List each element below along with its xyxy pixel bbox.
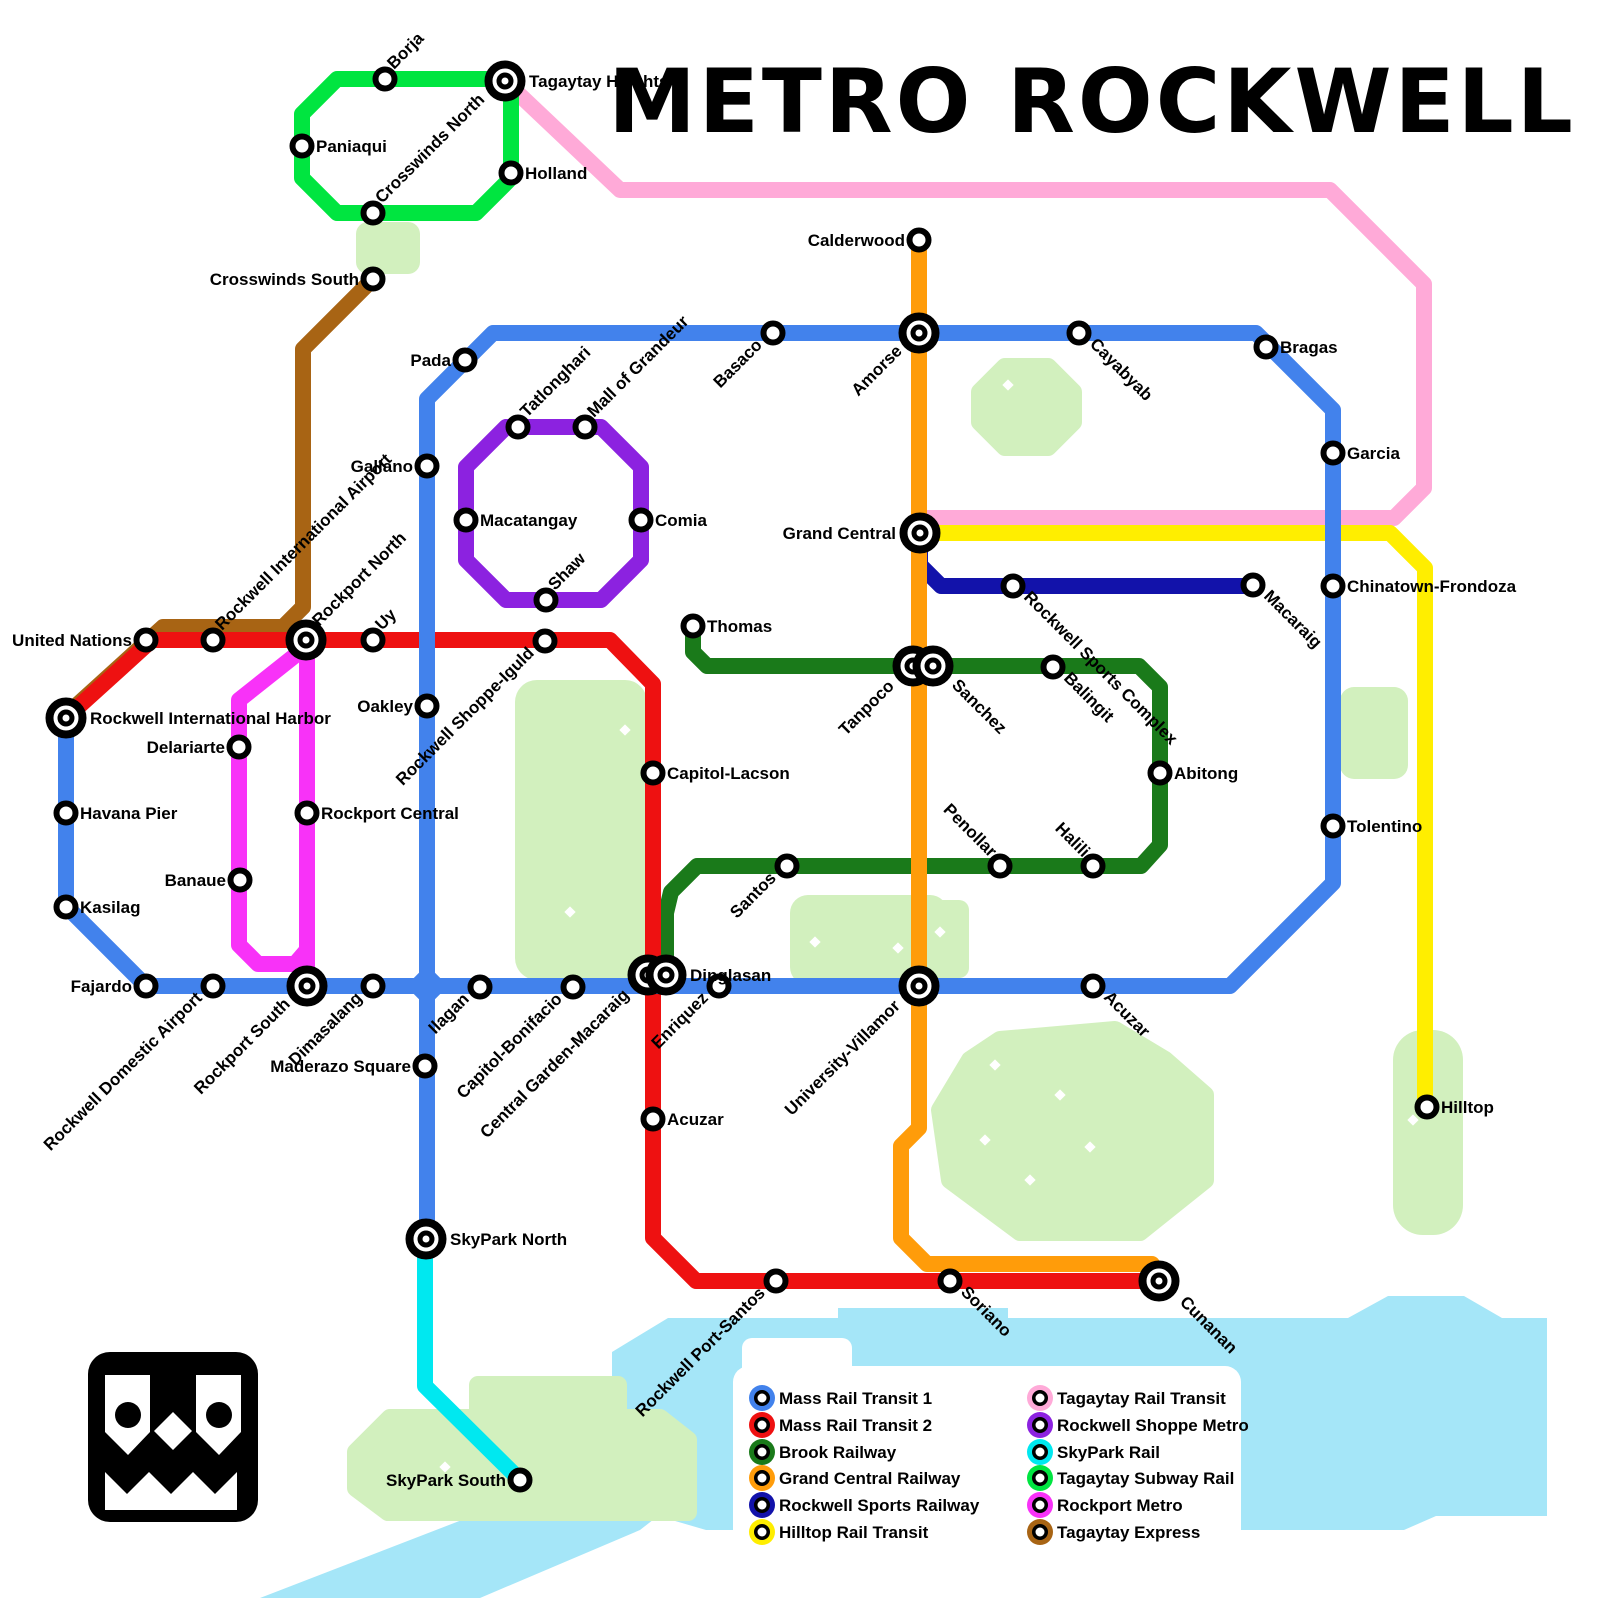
station-label-bragas: Bragas bbox=[1280, 338, 1338, 357]
station-label-santos: Santos bbox=[726, 868, 780, 922]
station-university-villamor bbox=[903, 970, 936, 1003]
station-label-rockport-south: Rockport South bbox=[190, 994, 294, 1098]
station-penollar bbox=[991, 857, 1010, 876]
station-label-banaue: Banaue bbox=[165, 871, 226, 890]
station-rockwell-sports-complex bbox=[1004, 577, 1023, 596]
station-label-borja: Borja bbox=[383, 28, 428, 73]
station-label-crosswinds-north: Crosswinds North bbox=[371, 90, 488, 207]
station-grand-central bbox=[904, 517, 937, 550]
junction-diamond bbox=[406, 965, 448, 1007]
legend: Mass Rail Transit 1Mass Rail Transit 2Br… bbox=[733, 1338, 1249, 1548]
station-amorse bbox=[903, 317, 936, 350]
station-chinatown-frondoza bbox=[1324, 577, 1343, 596]
station-rockwell-shoppe-iguld bbox=[536, 632, 555, 651]
station-label-grand-central: Grand Central bbox=[783, 524, 896, 543]
station-label-garcia: Garcia bbox=[1347, 444, 1400, 463]
station-label-tanpoco: Tanpoco bbox=[835, 676, 898, 739]
station-label-shaw: Shaw bbox=[544, 548, 589, 593]
station-tatlonghari bbox=[509, 418, 528, 437]
metro-rockwell-logo bbox=[88, 1352, 258, 1522]
station-label-thomas: Thomas bbox=[707, 617, 772, 636]
legend-item-grand-central-railway: Grand Central Railway bbox=[749, 1465, 961, 1491]
station-label-abitong: Abitong bbox=[1174, 764, 1238, 783]
legend-label-grand-central-railway: Grand Central Railway bbox=[779, 1469, 961, 1488]
metro-map: BorjaTagaytay HeightsPaniaquiHollandCros… bbox=[0, 0, 1600, 1600]
station-ilagan bbox=[471, 978, 490, 997]
metro-map-canvas: BorjaTagaytay HeightsPaniaquiHollandCros… bbox=[0, 0, 1600, 1600]
station-label-basaco: Basaco bbox=[710, 335, 766, 391]
station-label-kasilag: Kasilag bbox=[80, 898, 140, 917]
station-label-pada: Pada bbox=[410, 351, 451, 370]
station-crosswinds-north bbox=[364, 204, 383, 223]
station-capitol-lacson bbox=[644, 764, 663, 783]
station-abitong bbox=[1151, 764, 1170, 783]
station-label-sanchez: Sanchez bbox=[948, 675, 1010, 737]
park-0 bbox=[356, 222, 420, 274]
station-label-macatangay: Macatangay bbox=[480, 511, 578, 530]
station-label-delariarte: Delariarte bbox=[147, 738, 225, 757]
station-label-rockwell-domestic-airport: Rockwell Domestic Airport bbox=[40, 988, 206, 1154]
station-label-halili: Halili bbox=[1051, 819, 1093, 861]
station-macatangay bbox=[457, 511, 476, 530]
station-delariarte bbox=[230, 738, 249, 757]
station-calderwood bbox=[910, 231, 929, 250]
station-rockport-central bbox=[298, 804, 317, 823]
station-label-skypark-north: SkyPark North bbox=[450, 1230, 567, 1249]
line-rockwell-sports-railway bbox=[920, 540, 1253, 586]
legend-label-rockwell-shoppe-metro: Rockwell Shoppe Metro bbox=[1057, 1416, 1249, 1435]
legend-label-tagaytay-rail-transit: Tagaytay Rail Transit bbox=[1057, 1389, 1226, 1408]
station-crosswinds-south bbox=[364, 270, 383, 289]
station-kasilag bbox=[57, 898, 76, 917]
station-sanchez bbox=[917, 650, 950, 683]
station-banaue bbox=[231, 871, 250, 890]
station-label-maderazo-square: Maderazo Square bbox=[270, 1057, 411, 1076]
legend-label-tagaytay-subway-rail: Tagaytay Subway Rail bbox=[1057, 1469, 1234, 1488]
station-comia bbox=[632, 511, 651, 530]
station-label-rockport-central: Rockport Central bbox=[321, 804, 459, 823]
legend-label-mass-rail-transit-1: Mass Rail Transit 1 bbox=[779, 1389, 932, 1408]
station-label-skypark-south: SkyPark South bbox=[386, 1471, 506, 1490]
station-holland bbox=[502, 164, 521, 183]
station-label-capitol-lacson: Capitol-Lacson bbox=[667, 764, 790, 783]
legend-label-tagaytay-express: Tagaytay Express bbox=[1057, 1523, 1200, 1542]
station-rockport-south bbox=[291, 970, 324, 1003]
legend-label-skypark-rail: SkyPark Rail bbox=[1057, 1443, 1160, 1462]
station-dinglasan bbox=[650, 959, 683, 992]
station-label-dinglasan: Dinglasan bbox=[690, 966, 771, 985]
station-label-capitol-bonifacio: Capitol-Bonifacio bbox=[453, 989, 566, 1102]
station-fajardo bbox=[137, 977, 156, 996]
station-rockwell-domestic-airport bbox=[204, 977, 223, 996]
station-capitol-bonifacio bbox=[564, 978, 583, 997]
station-basaco bbox=[764, 324, 783, 343]
legend-label-hilltop-rail-transit: Hilltop Rail Transit bbox=[779, 1523, 929, 1542]
station-oakley bbox=[418, 697, 437, 716]
station-label-acuzar: Acuzar bbox=[667, 1110, 724, 1129]
station-macaraig bbox=[1244, 576, 1263, 595]
station-label-paniaqui: Paniaqui bbox=[316, 137, 387, 156]
legend-label-brook-railway: Brook Railway bbox=[779, 1443, 897, 1462]
station-mall-of-grandeur bbox=[576, 418, 595, 437]
legend-item-tagaytay-subway-rail: Tagaytay Subway Rail bbox=[1027, 1465, 1234, 1491]
station-santos bbox=[778, 857, 797, 876]
station-tolentino bbox=[1324, 817, 1343, 836]
station-pada bbox=[456, 351, 475, 370]
station-soriano bbox=[941, 1272, 960, 1291]
legend-item-brook-railway: Brook Railway bbox=[749, 1439, 897, 1465]
station-rockwell-port-santos bbox=[767, 1272, 786, 1291]
station-rockwell-international-harbor bbox=[50, 702, 83, 735]
legend-label-rockwell-sports-railway: Rockwell Sports Railway bbox=[779, 1496, 980, 1515]
station-label-havana-pier: Havana Pier bbox=[80, 804, 178, 823]
legend-label-mass-rail-transit-2: Mass Rail Transit 2 bbox=[779, 1416, 932, 1435]
station-label-cayabyab: Cayabyab bbox=[1086, 334, 1156, 404]
station-dimasalang bbox=[364, 977, 383, 996]
station-cayabyab bbox=[1070, 324, 1089, 343]
station-rockwell-international-airport bbox=[204, 631, 223, 650]
junction-layer bbox=[406, 965, 448, 1007]
station-label-macaraig: Macaraig bbox=[1260, 586, 1326, 652]
station-bragas bbox=[1257, 338, 1276, 357]
station-garcia bbox=[1324, 444, 1343, 463]
legend-item-rockwell-sports-railway: Rockwell Sports Railway bbox=[749, 1492, 980, 1518]
station-skypark-north bbox=[410, 1223, 443, 1256]
station-label-hilltop: Hilltop bbox=[1441, 1098, 1494, 1117]
station-label-galiano: Galiano bbox=[351, 457, 413, 476]
station-skypark-south bbox=[511, 1471, 530, 1490]
station-label-tolentino: Tolentino bbox=[1347, 817, 1422, 836]
legend-label-rockport-metro: Rockport Metro bbox=[1057, 1496, 1183, 1515]
legend-item-rockwell-shoppe-metro: Rockwell Shoppe Metro bbox=[1027, 1412, 1249, 1438]
station-rockport-north bbox=[290, 624, 323, 657]
station-label-fajardo: Fajardo bbox=[71, 977, 132, 996]
park-2 bbox=[515, 680, 647, 980]
park-1 bbox=[980, 367, 1073, 447]
station-label-crosswinds-south: Crosswinds South bbox=[210, 270, 359, 289]
station-paniaqui bbox=[293, 137, 312, 156]
station-label-calderwood: Calderwood bbox=[808, 231, 905, 250]
station-balingit bbox=[1044, 658, 1063, 677]
station-uy bbox=[364, 631, 383, 650]
station-label-chinatown-frondoza: Chinatown-Frondoza bbox=[1347, 577, 1517, 596]
station-label-penollar: Penollar bbox=[940, 800, 1001, 861]
map-title: METRO ROCKWELL bbox=[608, 50, 1576, 153]
station-acuzar bbox=[644, 1110, 663, 1129]
legend-item-skypark-rail: SkyPark Rail bbox=[1027, 1439, 1160, 1465]
legend-item-tagaytay-rail-transit: Tagaytay Rail Transit bbox=[1027, 1385, 1226, 1411]
station-shaw bbox=[537, 591, 556, 610]
station-label-tatlonghari: Tatlonghari bbox=[516, 343, 594, 421]
station-label-united-nations: United Nations bbox=[12, 631, 132, 650]
station-label-oakley: Oakley bbox=[357, 697, 413, 716]
station-label-amorse: Amorse bbox=[848, 341, 906, 399]
station-havana-pier bbox=[57, 804, 76, 823]
station-thomas bbox=[684, 617, 703, 636]
park-6 bbox=[940, 1030, 1205, 1232]
station-galiano bbox=[418, 457, 437, 476]
station-united-nations bbox=[137, 631, 156, 650]
station-acuzar bbox=[1084, 977, 1103, 996]
station-borja bbox=[376, 70, 395, 89]
station-cunanan bbox=[1143, 1265, 1176, 1298]
station-label-university-villamor: University-Villamor bbox=[781, 996, 904, 1119]
park-3 bbox=[1340, 687, 1408, 779]
station-hilltop bbox=[1418, 1098, 1437, 1117]
station-label-rockwell-international-harbor: Rockwell International Harbor bbox=[90, 709, 331, 728]
station-halili bbox=[1084, 857, 1103, 876]
station-maderazo-square bbox=[416, 1057, 435, 1076]
station-label-comia: Comia bbox=[655, 511, 708, 530]
station-label-holland: Holland bbox=[525, 164, 587, 183]
station-tagaytay-heights bbox=[489, 65, 522, 98]
